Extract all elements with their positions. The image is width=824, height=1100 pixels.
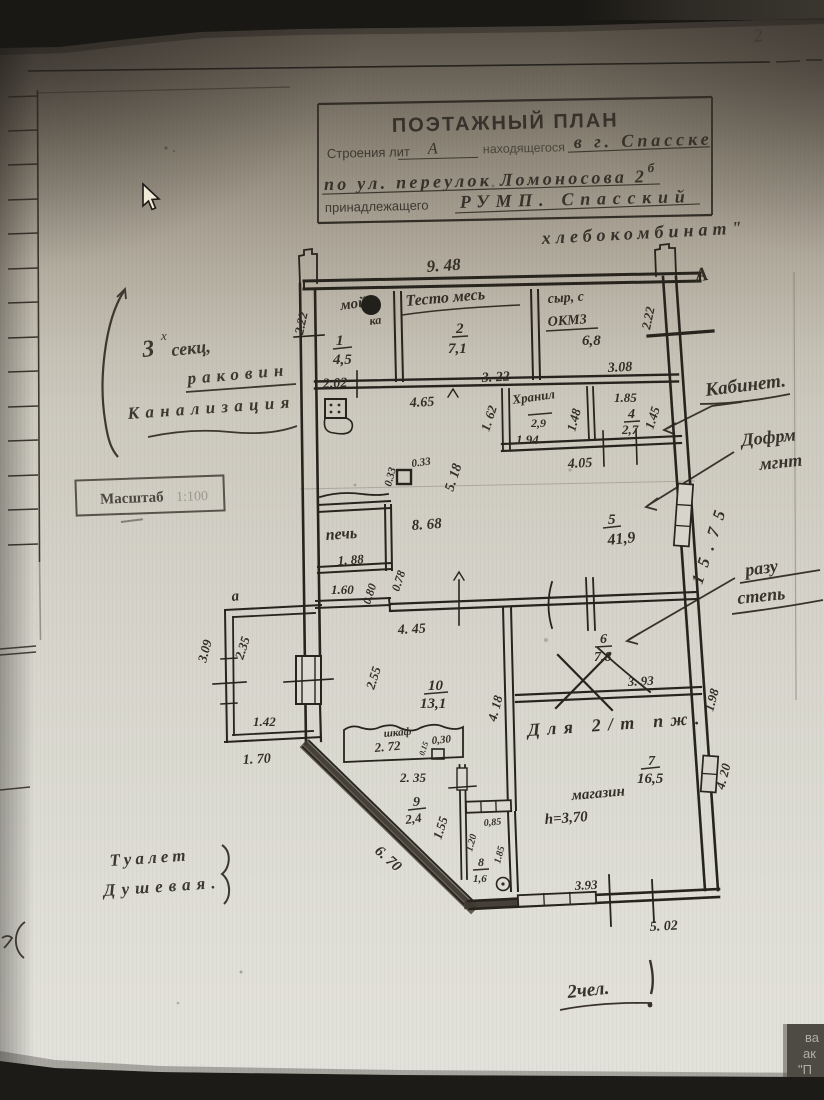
svg-text:1.85: 1.85	[614, 390, 637, 405]
svg-text:2.22: 2.22	[638, 305, 658, 332]
svg-text:7,8: 7,8	[594, 650, 612, 665]
svg-text:9. 48: 9. 48	[426, 255, 462, 276]
svg-text:ка: ка	[368, 312, 382, 328]
svg-text:1.48: 1.48	[563, 406, 584, 432]
svg-text:6,8: 6,8	[582, 333, 601, 349]
svg-text:13,1: 13,1	[420, 696, 446, 712]
svg-text:4: 4	[627, 407, 635, 422]
svg-text:3.09: 3.09	[194, 637, 215, 664]
svg-text:1.94: 1.94	[516, 432, 539, 447]
svg-text:5. 18: 5. 18	[443, 462, 466, 493]
svg-text:6: 6	[600, 632, 607, 647]
svg-text:1.60: 1.60	[331, 582, 354, 597]
svg-text:5. 02: 5. 02	[649, 919, 678, 935]
svg-text:а: а	[231, 588, 241, 605]
svg-text:2,4: 2,4	[403, 810, 423, 827]
svg-text:2,9: 2,9	[530, 416, 546, 430]
svg-text:4.05: 4.05	[566, 456, 592, 472]
svg-text:4.65: 4.65	[408, 395, 434, 411]
svg-text:1.85: 1.85	[492, 845, 507, 865]
svg-text:2.22: 2.22	[291, 310, 311, 337]
svg-text:2.35: 2.35	[231, 634, 253, 662]
svg-text:41,9: 41,9	[606, 529, 637, 549]
svg-text:10: 10	[428, 678, 444, 694]
svg-text:4. 18: 4. 18	[484, 693, 506, 723]
svg-text:16,5: 16,5	[637, 771, 664, 787]
svg-text:Для 2/т пж.: Для 2/т пж.	[525, 708, 700, 740]
svg-text:4. 45: 4. 45	[396, 622, 426, 638]
svg-text:Хранил: Хранил	[510, 386, 556, 407]
svg-text:1. 88: 1. 88	[337, 551, 364, 568]
svg-text:h=3,70: h=3,70	[544, 809, 589, 828]
svg-text:3.08: 3.08	[606, 360, 632, 376]
svg-text:1.42: 1.42	[253, 714, 276, 729]
svg-text:2. 35: 2. 35	[399, 770, 427, 785]
svg-text:9: 9	[413, 795, 420, 810]
svg-text:ОКМ3: ОКМ3	[547, 312, 587, 330]
svg-text:магазин: магазин	[570, 783, 626, 804]
svg-text:0,85: 0,85	[483, 817, 501, 829]
svg-text:сыр, с: сыр, с	[547, 289, 585, 307]
svg-text:2.55: 2.55	[362, 664, 384, 692]
svg-text:2. 72: 2. 72	[373, 738, 402, 755]
svg-text:1,6: 1,6	[473, 873, 487, 885]
svg-text:печь: печь	[325, 525, 358, 544]
svg-text:2.02: 2.02	[321, 376, 347, 392]
svg-text:Тесто месь: Тесто месь	[405, 286, 486, 310]
svg-text:2,7: 2,7	[621, 422, 639, 437]
svg-text:8: 8	[478, 855, 484, 869]
svg-text:3. 93: 3. 93	[626, 673, 654, 689]
svg-text:4,5: 4,5	[332, 352, 352, 368]
svg-text:1.45: 1.45	[642, 404, 663, 431]
svg-text:7,1: 7,1	[448, 341, 467, 357]
svg-text:А: А	[691, 263, 710, 287]
svg-text:8. 68: 8. 68	[411, 516, 443, 534]
svg-text:1. 70: 1. 70	[242, 752, 271, 768]
svg-text:1.55: 1.55	[430, 814, 451, 841]
svg-text:1. 62: 1. 62	[478, 403, 500, 433]
svg-text:6. 70: 6. 70	[371, 843, 404, 875]
svg-text:3.93: 3.93	[573, 877, 598, 893]
svg-text:2: 2	[455, 321, 464, 337]
svg-text:0.33: 0.33	[411, 455, 432, 470]
svg-text:5: 5	[608, 512, 616, 528]
svg-text:1: 1	[336, 333, 344, 349]
svg-text:3. 22: 3. 22	[480, 370, 510, 386]
svg-text:0.78: 0.78	[389, 569, 409, 593]
svg-text:0.80: 0.80	[360, 582, 380, 606]
svg-text:0.15: 0.15	[417, 741, 430, 757]
svg-text:0,30: 0,30	[431, 733, 452, 747]
svg-text:7: 7	[648, 754, 656, 769]
